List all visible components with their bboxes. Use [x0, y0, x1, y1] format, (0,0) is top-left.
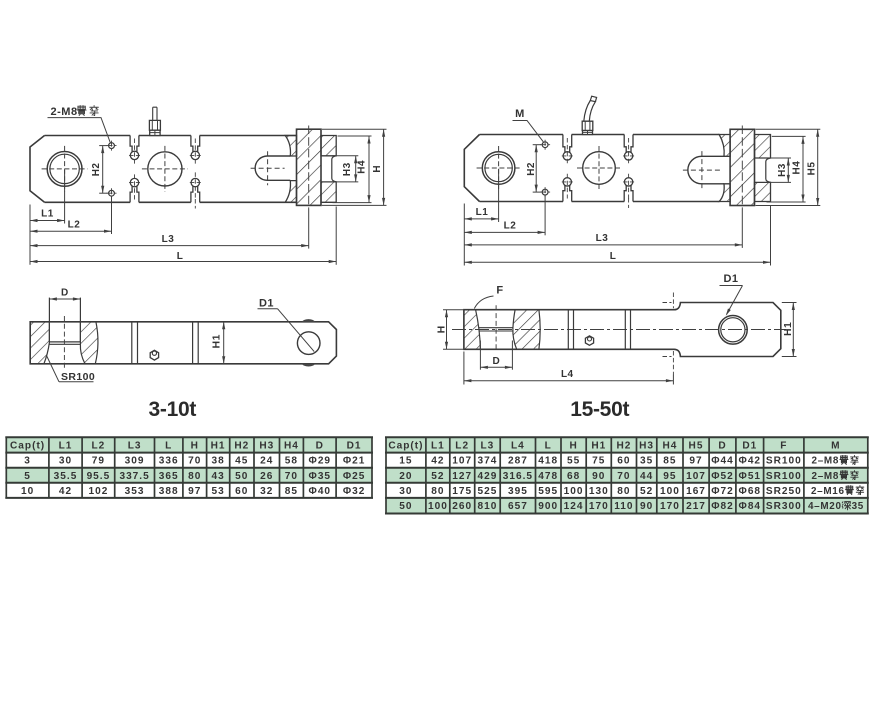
- svg-text:15-50t: 15-50t: [570, 398, 629, 421]
- svg-text:Φ35: Φ35: [309, 471, 332, 482]
- svg-text:170: 170: [589, 501, 609, 512]
- svg-text:309: 309: [125, 456, 145, 467]
- svg-text:SR100: SR100: [766, 471, 802, 482]
- svg-text:D1: D1: [347, 441, 362, 452]
- svg-text:L: L: [545, 441, 552, 452]
- svg-text:395: 395: [508, 486, 528, 497]
- svg-text:75: 75: [592, 456, 605, 467]
- svg-text:5: 5: [24, 471, 31, 482]
- svg-text:107: 107: [686, 471, 706, 482]
- svg-text:374: 374: [477, 456, 497, 467]
- svg-text:70: 70: [285, 471, 298, 482]
- svg-text:H4: H4: [357, 160, 368, 174]
- svg-text:95: 95: [663, 471, 676, 482]
- svg-text:170: 170: [660, 501, 680, 512]
- svg-text:79: 79: [92, 456, 105, 467]
- svg-text:D1: D1: [259, 297, 274, 309]
- svg-text:38: 38: [211, 456, 224, 467]
- svg-text:810: 810: [477, 501, 497, 512]
- svg-text:H1: H1: [211, 334, 223, 348]
- svg-text:L1: L1: [476, 207, 489, 218]
- svg-text:26: 26: [260, 471, 273, 482]
- svg-text:H: H: [191, 441, 199, 452]
- svg-text:80: 80: [617, 486, 630, 497]
- svg-text:10: 10: [21, 486, 34, 497]
- svg-text:42: 42: [431, 456, 444, 467]
- svg-text:70: 70: [617, 471, 630, 482]
- svg-text:100: 100: [660, 486, 680, 497]
- svg-text:525: 525: [477, 486, 497, 497]
- svg-text:44: 44: [640, 471, 653, 482]
- svg-text:97: 97: [188, 486, 201, 497]
- svg-text:107: 107: [452, 456, 472, 467]
- svg-text:60: 60: [235, 486, 248, 497]
- svg-text:D: D: [61, 287, 69, 298]
- svg-text:L2: L2: [455, 441, 469, 452]
- svg-text:Φ21: Φ21: [343, 456, 366, 467]
- svg-text:M: M: [831, 441, 840, 452]
- svg-text:H2: H2: [616, 441, 631, 452]
- svg-text:30: 30: [399, 486, 412, 497]
- svg-text:4–M20: 4–M20: [808, 501, 842, 512]
- svg-text:80: 80: [188, 471, 201, 482]
- svg-text:85: 85: [285, 486, 298, 497]
- svg-text:365: 365: [159, 471, 179, 482]
- svg-text:24: 24: [260, 456, 273, 467]
- svg-text:110: 110: [614, 501, 633, 512]
- svg-text:167: 167: [686, 486, 706, 497]
- svg-text:2-M8: 2-M8: [51, 106, 78, 118]
- svg-text:Φ42: Φ42: [739, 456, 762, 467]
- svg-text:353: 353: [125, 486, 145, 497]
- svg-text:L: L: [165, 441, 172, 452]
- svg-text:Φ84: Φ84: [739, 501, 762, 512]
- svg-text:Φ29: Φ29: [309, 456, 332, 467]
- svg-text:H2: H2: [91, 163, 102, 177]
- svg-text:SR250: SR250: [766, 486, 802, 497]
- svg-text:H: H: [569, 441, 577, 452]
- svg-text:H5: H5: [689, 441, 704, 452]
- svg-text:L3: L3: [481, 441, 495, 452]
- svg-text:L: L: [610, 251, 617, 262]
- svg-text:Φ32: Φ32: [343, 486, 366, 497]
- svg-text:Φ68: Φ68: [739, 486, 762, 497]
- svg-text:H3: H3: [259, 441, 274, 452]
- svg-text:260: 260: [452, 501, 472, 512]
- svg-text:90: 90: [592, 471, 605, 482]
- svg-text:2–M8: 2–M8: [812, 456, 840, 467]
- svg-text:H4: H4: [662, 441, 677, 452]
- svg-text:L3: L3: [596, 233, 609, 244]
- svg-text:F: F: [780, 441, 787, 452]
- svg-text:Φ44: Φ44: [711, 456, 734, 467]
- svg-text:SR300: SR300: [766, 501, 802, 512]
- svg-text:L1: L1: [431, 441, 445, 452]
- svg-text:M: M: [515, 108, 525, 120]
- svg-text:D1: D1: [742, 441, 757, 452]
- svg-text:70: 70: [188, 456, 201, 467]
- svg-text:337.5: 337.5: [119, 471, 149, 482]
- svg-text:102: 102: [88, 486, 108, 497]
- svg-text:L1: L1: [59, 441, 73, 452]
- svg-text:124: 124: [564, 501, 584, 512]
- svg-text:H3: H3: [777, 163, 788, 177]
- svg-text:H1: H1: [591, 441, 606, 452]
- svg-text:F: F: [496, 285, 503, 297]
- svg-text:D: D: [718, 441, 726, 452]
- svg-text:35: 35: [852, 501, 864, 512]
- svg-text:55: 55: [567, 456, 580, 467]
- svg-text:80: 80: [431, 486, 444, 497]
- svg-text:H4: H4: [792, 161, 803, 175]
- svg-text:3-10t: 3-10t: [149, 398, 197, 421]
- svg-text:90: 90: [640, 501, 653, 512]
- svg-text:Φ82: Φ82: [711, 501, 734, 512]
- svg-text:429: 429: [477, 471, 497, 482]
- svg-text:35: 35: [640, 456, 653, 467]
- svg-text:H1: H1: [782, 322, 794, 336]
- svg-text:2–M8: 2–M8: [812, 471, 840, 482]
- svg-text:H3: H3: [342, 162, 353, 176]
- svg-text:SR100: SR100: [61, 371, 95, 383]
- svg-text:Φ25: Φ25: [343, 471, 366, 482]
- svg-text:H4: H4: [284, 441, 299, 452]
- svg-text:Cap(t): Cap(t): [388, 441, 423, 452]
- svg-text:15: 15: [399, 456, 412, 467]
- svg-text:478: 478: [538, 471, 558, 482]
- svg-text:85: 85: [663, 456, 676, 467]
- svg-text:H3: H3: [639, 441, 654, 452]
- svg-text:53: 53: [211, 486, 224, 497]
- svg-text:97: 97: [689, 456, 702, 467]
- svg-text:L1: L1: [41, 209, 54, 220]
- svg-text:287: 287: [508, 456, 528, 467]
- svg-text:30: 30: [59, 456, 72, 467]
- svg-text:H2: H2: [234, 441, 249, 452]
- svg-text:127: 127: [452, 471, 472, 482]
- svg-text:336: 336: [159, 456, 179, 467]
- svg-text:316.5: 316.5: [503, 471, 533, 482]
- svg-text:130: 130: [589, 486, 609, 497]
- svg-text:L3: L3: [162, 234, 175, 245]
- svg-text:388: 388: [159, 486, 179, 497]
- svg-text:50: 50: [235, 471, 248, 482]
- svg-text:L: L: [177, 251, 184, 262]
- svg-text:H1: H1: [211, 441, 226, 452]
- svg-text:32: 32: [260, 486, 273, 497]
- svg-text:900: 900: [538, 501, 558, 512]
- svg-text:L4: L4: [561, 369, 574, 380]
- svg-text:100: 100: [428, 501, 448, 512]
- svg-text:58: 58: [285, 456, 298, 467]
- svg-text:95.5: 95.5: [87, 471, 111, 482]
- svg-text:D: D: [493, 356, 501, 367]
- svg-text:100: 100: [564, 486, 584, 497]
- svg-text:2–M16: 2–M16: [811, 486, 845, 497]
- svg-text:52: 52: [431, 471, 444, 482]
- svg-text:657: 657: [508, 501, 528, 512]
- svg-text:L4: L4: [511, 441, 525, 452]
- svg-text:L2: L2: [68, 219, 81, 230]
- svg-text:175: 175: [452, 486, 472, 497]
- svg-text:43: 43: [211, 471, 224, 482]
- svg-text:Φ51: Φ51: [739, 471, 762, 482]
- svg-text:L3: L3: [128, 441, 142, 452]
- svg-text:Φ40: Φ40: [309, 486, 332, 497]
- svg-text:595: 595: [538, 486, 558, 497]
- svg-text:3: 3: [24, 456, 31, 467]
- svg-text:42: 42: [59, 486, 72, 497]
- svg-text:52: 52: [640, 486, 653, 497]
- svg-text:D1: D1: [723, 273, 738, 285]
- svg-text:H: H: [435, 325, 447, 333]
- svg-text:L2: L2: [92, 441, 106, 452]
- svg-text:L2: L2: [504, 221, 517, 232]
- svg-text:60: 60: [617, 456, 630, 467]
- svg-text:217: 217: [686, 501, 706, 512]
- svg-text:45: 45: [235, 456, 248, 467]
- svg-text:H: H: [372, 165, 383, 173]
- svg-text:Φ52: Φ52: [711, 471, 734, 482]
- svg-text:20: 20: [399, 471, 412, 482]
- svg-text:35.5: 35.5: [54, 471, 78, 482]
- svg-text:H5: H5: [806, 162, 817, 176]
- svg-text:D: D: [316, 441, 324, 452]
- svg-text:SR100: SR100: [766, 456, 802, 467]
- svg-text:68: 68: [567, 471, 580, 482]
- svg-text:Cap(t): Cap(t): [10, 441, 45, 452]
- svg-text:50: 50: [399, 501, 412, 512]
- svg-text:H2: H2: [526, 162, 537, 176]
- svg-text:418: 418: [538, 456, 558, 467]
- svg-text:Φ72: Φ72: [711, 486, 734, 497]
